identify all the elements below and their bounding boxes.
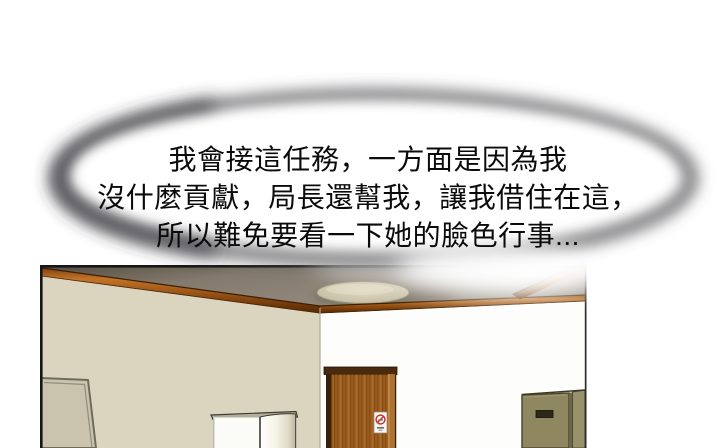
door-left-jamb	[326, 374, 331, 448]
sign-text-mark-2	[379, 430, 383, 431]
panel-border-right	[585, 266, 587, 448]
door-slab	[331, 375, 388, 448]
leaning-board	[41, 378, 96, 448]
locker-side	[573, 390, 586, 448]
white-cabinet	[211, 412, 298, 448]
cabinet-rounded-side	[260, 414, 296, 448]
ceiling-light	[316, 282, 410, 306]
bubble-line-3: 所以難免要看一下她的臉色行事...	[38, 217, 698, 255]
sign-text-mark	[377, 427, 384, 429]
locker-face	[522, 393, 569, 448]
panel-border-left	[40, 265, 43, 448]
bubble-line-2: 沒什麼貢獻，局長還幫我，讓我借住在這，	[38, 179, 698, 217]
bubble-line-1: 我會接這任務，一方面是因為我	[38, 141, 698, 179]
cabinet-door-left	[213, 418, 260, 448]
locker-cabinet	[522, 390, 585, 448]
locker-seam	[569, 393, 573, 448]
wooden-door	[324, 367, 397, 448]
no-smoking-sign	[374, 412, 387, 433]
speech-bubble-text: 我會接這任務，一方面是因為我 沒什麼貢獻，局長還幫我，讓我借住在這， 所以難免要…	[38, 141, 698, 259]
comic-page: 我會接這任務，一方面是因為我 沒什麼貢獻，局長還幫我，讓我借住在這， 所以難免要…	[0, 0, 720, 448]
light-highlight	[326, 284, 394, 295]
locker-handle	[536, 411, 553, 418]
door-lintel	[324, 367, 397, 375]
